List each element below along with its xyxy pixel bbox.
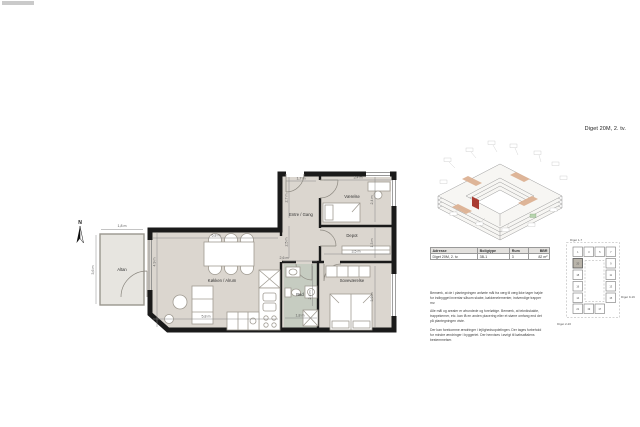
floorplan-page: { "page": { "title": "Diget 20M, 2. tv."…	[0, 0, 640, 427]
dim-entre-upper: 2,7 m	[285, 194, 289, 203]
dim-koekken-height: 4,9 m	[153, 258, 157, 267]
room-label-depot: Depot	[346, 233, 358, 238]
room-label-koekken: Køkken / Alrum	[208, 278, 237, 283]
table-row: Diget 20M, 2. tv. 3B-1 3 82 m²	[431, 254, 550, 260]
coffee-table	[173, 295, 187, 309]
room-label-entre: Entre / Gang	[289, 212, 313, 217]
room-label-altan: Altan	[117, 267, 127, 272]
dining-table	[204, 242, 254, 266]
cell-bbr: 82 m²	[529, 254, 550, 260]
cell-boligtype: 3B-1	[478, 254, 510, 260]
dim-altan-width: 1,8 m	[118, 224, 127, 228]
isometric-building-view	[438, 141, 567, 240]
north-arrow-icon: N	[77, 220, 84, 243]
site-label-top: Diget 1-7	[570, 238, 583, 242]
site-label-left: Diget 2-20	[557, 322, 571, 326]
site-label-right: Diget 9-19	[621, 295, 635, 299]
site-plan: 1 3 5 7 9 11 13 15 17 19 21 20 18 16 14 …	[557, 238, 635, 326]
dim-bad-height: 2,4 m	[308, 291, 312, 300]
courtyard-boundary	[585, 261, 604, 302]
disclaimer-text: Bemærk, at de i plantegningen anførte må…	[430, 291, 543, 346]
green-unit-chip	[530, 214, 536, 218]
dim-koekken-width: 6,8 m	[212, 234, 221, 238]
dim-koekken-bottom: 5,8 m	[202, 315, 211, 319]
dim-passage: 2,6 m	[280, 256, 289, 260]
desk	[368, 182, 390, 191]
dim-vaerelse-height: 2,4 m	[370, 196, 374, 205]
disclaimer-paragraph-1: Bemærk, at de i plantegningen anførte må…	[430, 291, 543, 306]
apartment-info-table: Adresse Boligtype Rum BBR Diget 20M, 2. …	[430, 247, 550, 260]
dim-vaerelse-width: 3,4 m	[354, 176, 363, 180]
floorplan-drawing: 1,8 m 3,6 m 6,8 m 4,9 m 5,8 m 2,6 m 1,7 …	[0, 0, 640, 427]
room-label-vaerelse: Værelse	[344, 194, 360, 199]
dim-sove-height: 3,9 m	[370, 293, 374, 302]
dim-entre-width: 1,7 m	[297, 177, 306, 181]
page-title: Diget 20M, 2. tv.	[585, 126, 626, 132]
room-label-bad: Bad	[296, 292, 304, 297]
room-label-sove: Soveværelse	[340, 278, 365, 283]
dim-depot-height: 1,3 m	[370, 239, 374, 248]
site-blocks	[573, 247, 616, 314]
cell-rum: 3	[510, 254, 529, 260]
dim-depot-width: 3,5 m	[352, 250, 361, 254]
dim-entre-lower: 2,5 m	[285, 238, 289, 247]
apartment-plan: 1,8 m 3,6 m 6,8 m 4,9 m 5,8 m 2,6 m 1,7 …	[77, 171, 398, 330]
disclaimer-paragraph-3: Der kan forekomme ændringer i lejligheds…	[430, 328, 543, 343]
dim-altan-height: 3,6 m	[91, 266, 95, 275]
toilet	[285, 288, 291, 297]
dim-bad-width: 1,8 m	[296, 314, 305, 318]
north-label: N	[78, 220, 82, 226]
disclaimer-paragraph-2: Alle mål og arealer er afrundede og fore…	[430, 309, 543, 324]
cell-adresse: Diget 20M, 2. tv.	[431, 254, 478, 260]
